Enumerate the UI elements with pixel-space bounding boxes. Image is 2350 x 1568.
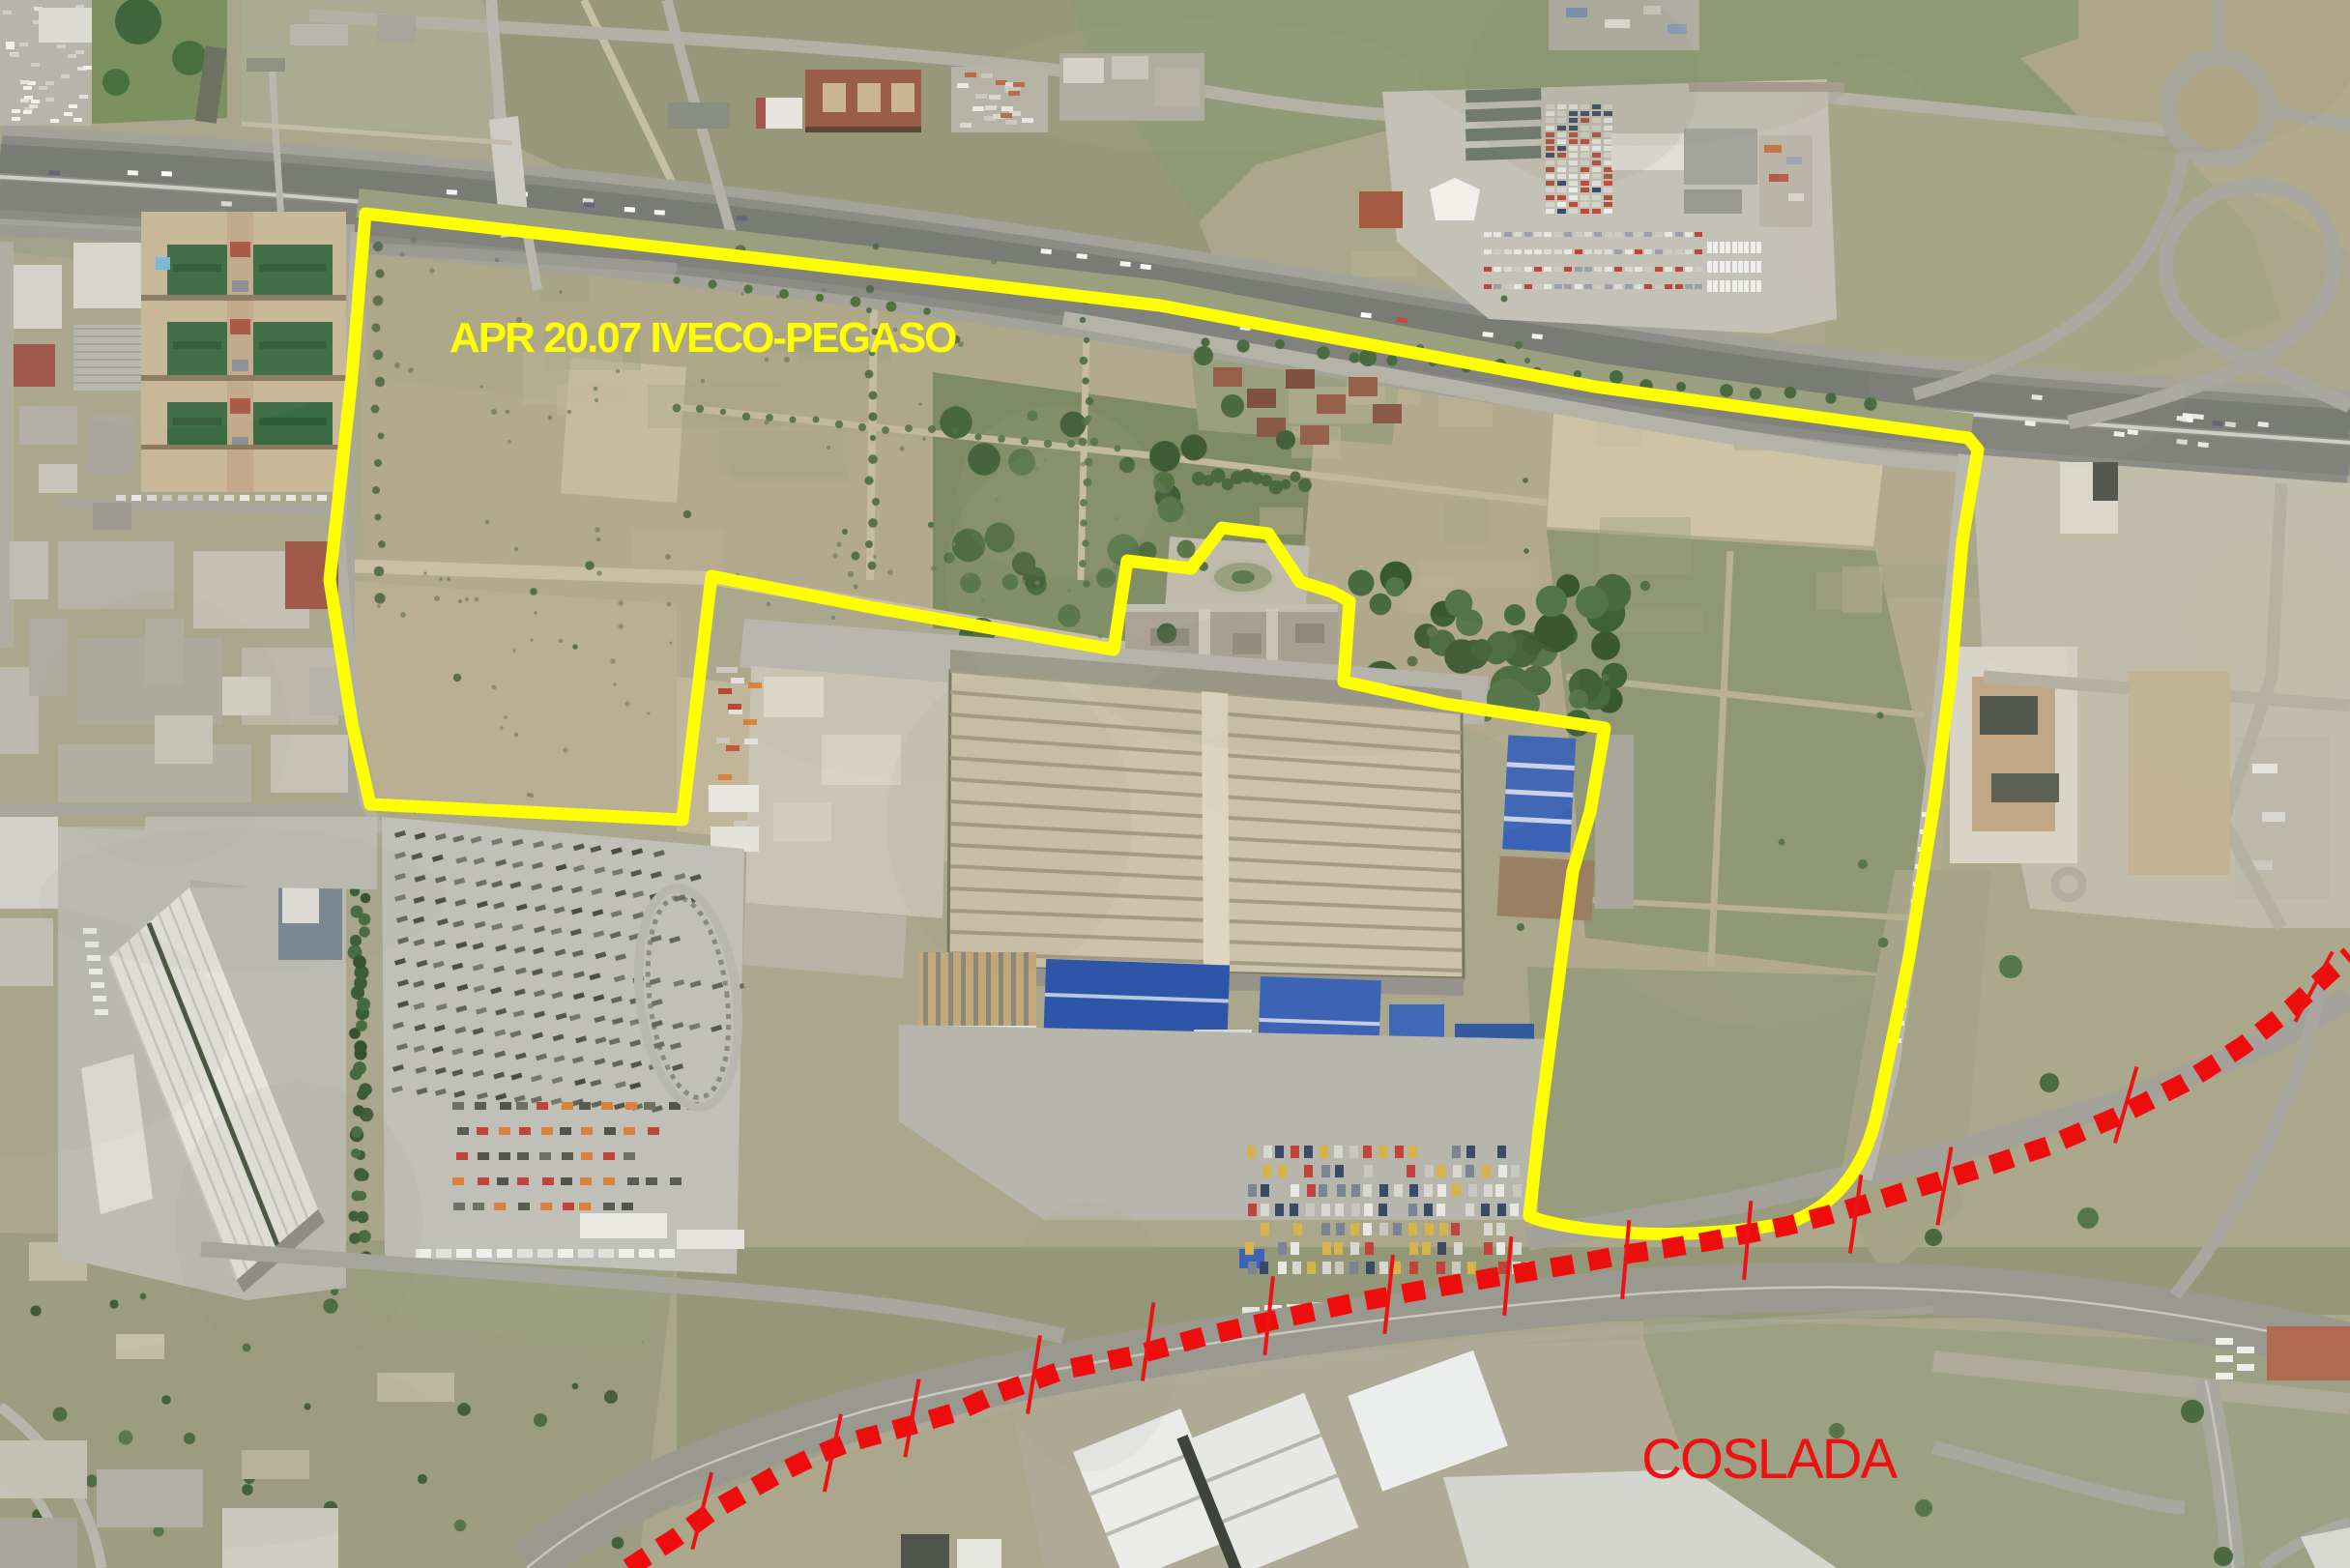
svg-text:APR 20.07 IVECO-PEGASO: APR 20.07 IVECO-PEGASO	[450, 314, 956, 362]
svg-text:COSLADA: COSLADA	[1641, 1428, 1899, 1491]
